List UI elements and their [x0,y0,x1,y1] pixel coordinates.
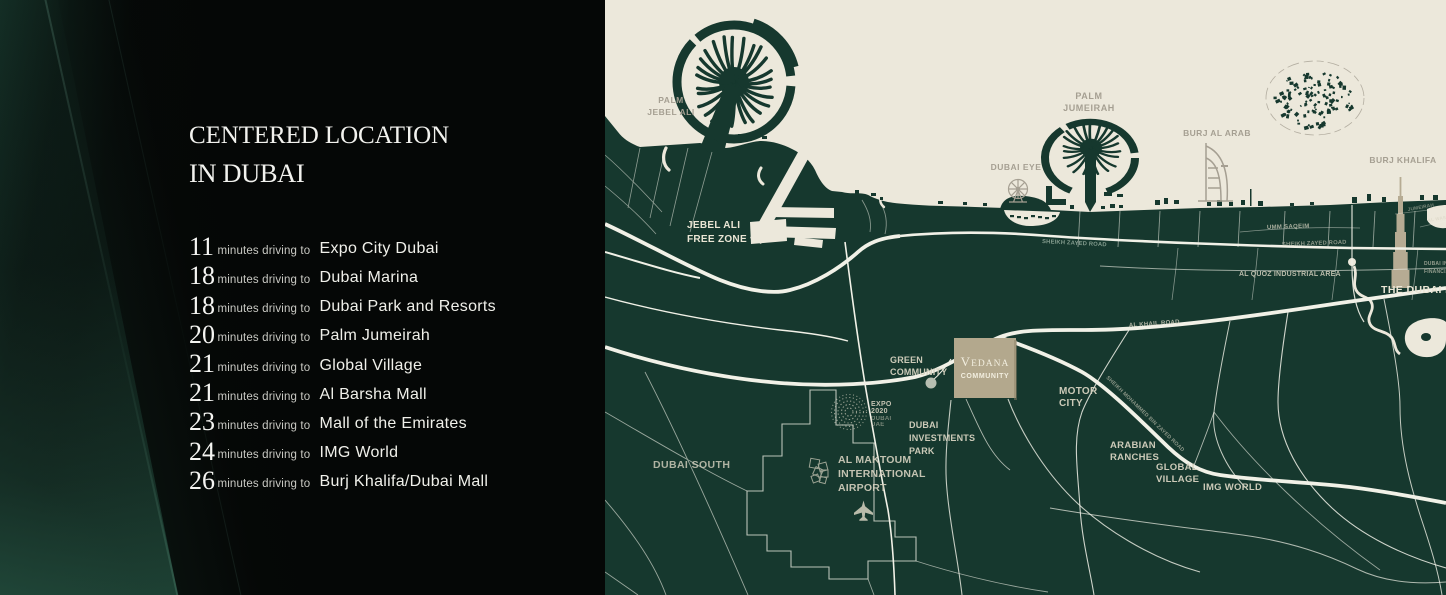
svg-text:VILLAGE: VILLAGE [1156,474,1199,485]
svg-text:EXPO: EXPO [871,401,892,408]
svg-text:DUBAI INT: DUBAI INT [1424,261,1446,267]
svg-text:UAE: UAE [871,422,885,428]
svg-text:PALM: PALM [658,95,683,105]
svg-text:JEBEL ALI: JEBEL ALI [687,220,740,231]
svg-text:BURJ AL ARAB: BURJ AL ARAB [1183,128,1251,138]
svg-text:BURJ KHALIFA: BURJ KHALIFA [1369,155,1436,165]
svg-text:AIRPORT: AIRPORT [838,482,887,494]
svg-text:INTERNATIONAL: INTERNATIONAL [838,468,926,480]
svg-text:PALM: PALM [1075,91,1102,101]
svg-text:THE DUBAI MALL: THE DUBAI MALL [1381,284,1446,296]
svg-text:DUBAI: DUBAI [909,420,939,430]
svg-text:GLOBAL: GLOBAL [1156,462,1198,473]
svg-text:AL MAKTOUM: AL MAKTOUM [838,454,911,466]
svg-text:RANCHES: RANCHES [1110,452,1159,463]
svg-text:FINANCIAL: FINANCIAL [1424,269,1446,275]
svg-text:MOTOR: MOTOR [1059,386,1098,397]
svg-text:FREE ZONE: FREE ZONE [687,234,747,245]
svg-text:2020: 2020 [871,408,888,415]
svg-text:COMMUNITY: COMMUNITY [890,367,947,377]
svg-text:CITY: CITY [1059,398,1083,409]
svg-text:GREEN: GREEN [890,355,923,365]
svg-text:ARABIAN: ARABIAN [1110,440,1156,451]
svg-text:INVESTMENTS: INVESTMENTS [909,433,975,443]
svg-text:DUBAI SOUTH: DUBAI SOUTH [653,459,730,471]
svg-text:AL QUOZ INDUSTRIAL AREA: AL QUOZ INDUSTRIAL AREA [1239,271,1341,278]
svg-text:JUMEIRAH: JUMEIRAH [1063,103,1115,113]
svg-text:IMG WORLD: IMG WORLD [1203,482,1262,493]
svg-text:COMMUNITY: COMMUNITY [961,373,1010,380]
svg-text:PARK: PARK [909,446,935,456]
svg-text:JEBEL ALI: JEBEL ALI [647,107,694,117]
svg-text:DUBAI EYE: DUBAI EYE [991,162,1042,172]
